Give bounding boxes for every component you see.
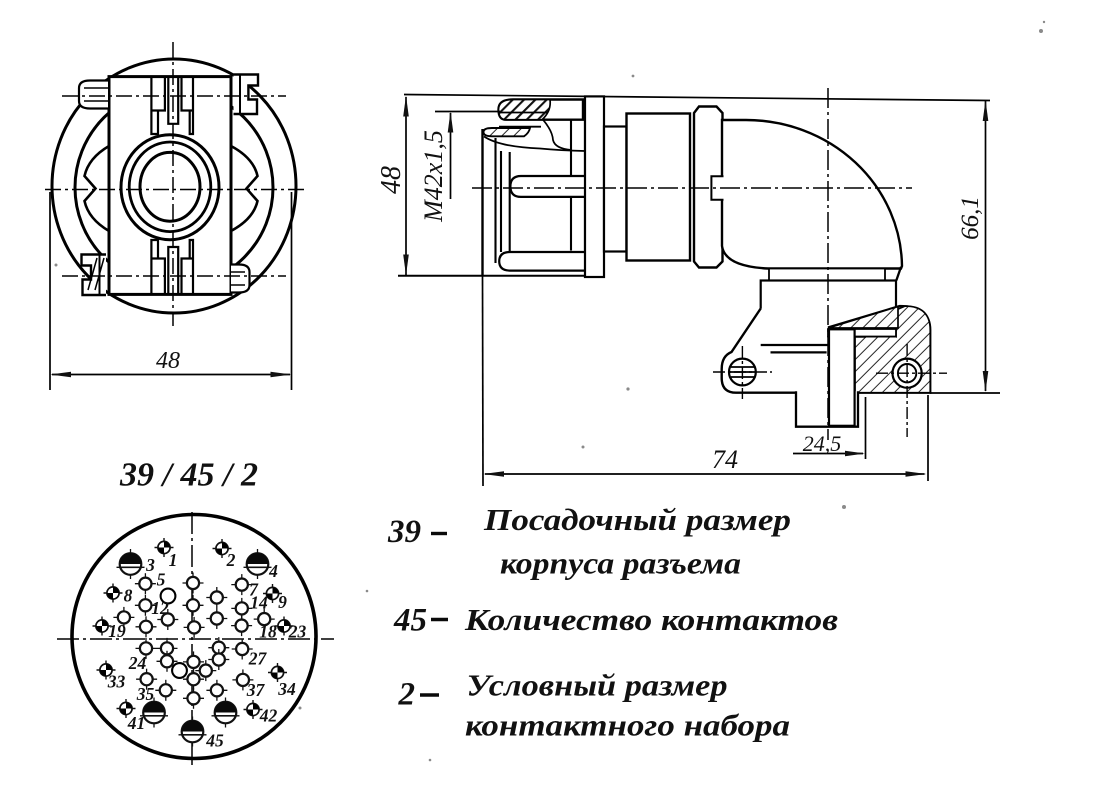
svg-text:35: 35 bbox=[136, 684, 155, 704]
svg-text:М42х1,5: М42х1,5 bbox=[419, 130, 448, 223]
svg-text:2: 2 bbox=[226, 550, 236, 570]
svg-text:34: 34 bbox=[277, 679, 296, 699]
svg-text:контактного набора: контактного набора bbox=[465, 708, 790, 743]
svg-text:5: 5 bbox=[157, 570, 166, 590]
svg-text:Посадочный размер: Посадочный размер bbox=[483, 502, 791, 537]
svg-text:18: 18 bbox=[259, 622, 277, 642]
svg-text:4: 4 bbox=[268, 561, 278, 581]
svg-text:48: 48 bbox=[156, 348, 180, 374]
svg-text:12: 12 bbox=[151, 598, 169, 618]
svg-text:39 / 45 / 2: 39 / 45 / 2 bbox=[119, 457, 258, 494]
svg-text:24,5: 24,5 bbox=[803, 431, 842, 456]
svg-text:27: 27 bbox=[248, 649, 268, 669]
svg-text:39: 39 bbox=[387, 514, 421, 550]
svg-text:48: 48 bbox=[376, 166, 407, 194]
svg-text:корпуса разъема: корпуса разъема bbox=[500, 546, 741, 581]
svg-text:3: 3 bbox=[145, 555, 155, 575]
svg-text:41: 41 bbox=[127, 713, 146, 733]
svg-text:42: 42 bbox=[259, 706, 278, 726]
svg-text:14: 14 bbox=[250, 593, 268, 613]
svg-text:23: 23 bbox=[288, 622, 307, 642]
svg-text:37: 37 bbox=[246, 680, 266, 700]
svg-text:8: 8 bbox=[124, 586, 133, 606]
svg-text:74: 74 bbox=[712, 445, 738, 474]
svg-text:24: 24 bbox=[128, 653, 147, 673]
svg-text:19: 19 bbox=[108, 621, 126, 641]
svg-text:66,1: 66,1 bbox=[957, 196, 984, 240]
svg-text:45: 45 bbox=[393, 603, 427, 639]
svg-text:33: 33 bbox=[107, 672, 126, 692]
svg-text:Количество контактов: Количество контактов bbox=[464, 602, 838, 637]
svg-text:2: 2 bbox=[398, 677, 416, 713]
svg-text:9: 9 bbox=[278, 592, 287, 612]
svg-text:Условный размер: Условный размер bbox=[467, 668, 728, 703]
svg-text:1: 1 bbox=[169, 550, 178, 570]
svg-text:45: 45 bbox=[205, 731, 224, 751]
